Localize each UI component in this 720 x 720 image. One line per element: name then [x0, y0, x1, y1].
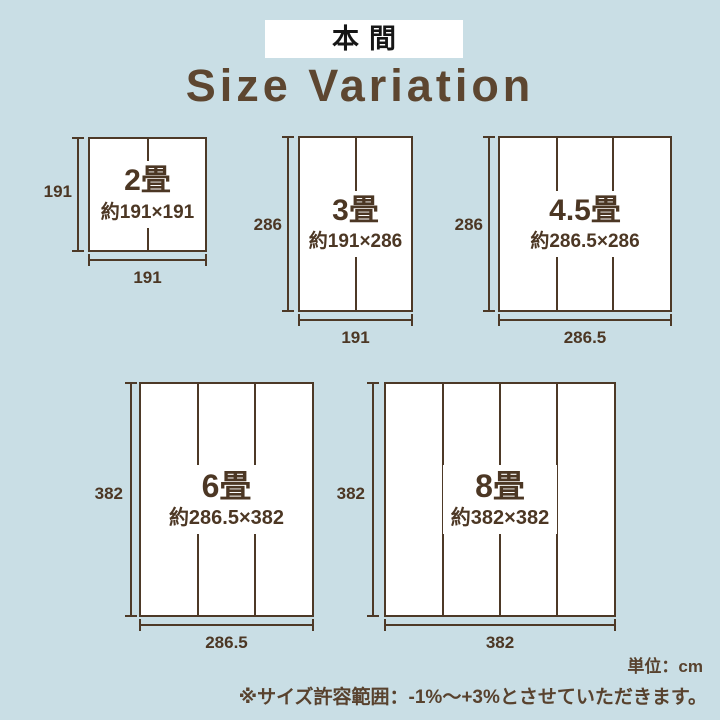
- diagram-label-block: 2畳 約191×191: [93, 161, 203, 227]
- unit-note: 単位：cm: [627, 657, 703, 677]
- diagram-title: 6畳: [169, 468, 284, 505]
- width-dimension-label: 191: [298, 329, 413, 346]
- width-extent-line: [88, 254, 207, 266]
- width-dimension-label: 382: [384, 634, 616, 651]
- diagram-size: 約191×191: [101, 201, 195, 225]
- diagram-label-block: 8畳 約382×382: [443, 465, 557, 535]
- tatami-rect: 2畳 約191×191: [88, 137, 207, 252]
- tolerance-note: ※サイズ許容範囲：-1%〜+3%とさせていただきます。: [239, 687, 707, 710]
- diagram-size: 約191×286: [309, 230, 403, 254]
- diagram-title: 2畳: [101, 164, 195, 199]
- tatami-rect: 3畳 約191×286: [298, 136, 413, 312]
- page-title: Size Variation: [0, 62, 720, 109]
- width-dimension-label: 286.5: [498, 329, 672, 346]
- size-variation-infographic: 本間 Size Variation 191 2畳 約191×191 191 28…: [0, 0, 720, 720]
- diagram-label-block: 3畳 約191×286: [301, 191, 411, 257]
- height-dimension-label: 382: [331, 485, 365, 502]
- width-dimension-label: 191: [88, 269, 207, 286]
- height-extent-line: [367, 382, 379, 617]
- width-extent-line: [498, 314, 672, 326]
- diagram-label-block: 6畳 約286.5×382: [161, 465, 292, 535]
- diagram-title: 4.5畳: [530, 194, 639, 229]
- diagram-title: 8畳: [451, 468, 549, 505]
- height-dimension-label: 286: [449, 216, 483, 233]
- height-extent-line: [125, 382, 137, 617]
- diagram-size: 約382×382: [451, 506, 549, 531]
- width-extent-line: [298, 314, 413, 326]
- tatami-rect: 6畳 約286.5×382: [139, 382, 314, 617]
- height-dimension-label: 191: [38, 183, 72, 200]
- diagram-title: 3畳: [309, 194, 403, 229]
- brand-label: 本間: [322, 26, 406, 53]
- width-extent-line: [139, 619, 314, 631]
- tatami-rect: 4.5畳 約286.5×286: [498, 136, 672, 312]
- height-dimension-label: 382: [89, 485, 123, 502]
- height-extent-line: [72, 137, 84, 252]
- width-dimension-label: 286.5: [139, 634, 314, 651]
- height-extent-line: [282, 136, 294, 312]
- brand-badge: 本間: [265, 20, 463, 58]
- height-dimension-label: 286: [248, 216, 282, 233]
- diagram-label-block: 4.5畳 約286.5×286: [522, 191, 647, 257]
- width-extent-line: [384, 619, 616, 631]
- height-extent-line: [483, 136, 495, 312]
- diagram-size: 約286.5×286: [530, 230, 639, 254]
- diagram-size: 約286.5×382: [169, 506, 284, 531]
- tatami-rect: 8畳 約382×382: [384, 382, 616, 617]
